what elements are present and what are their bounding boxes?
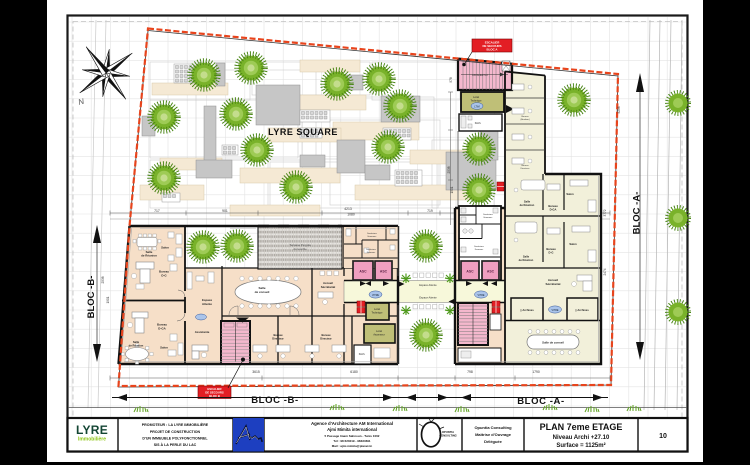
svg-text:Salle: Salle <box>523 255 530 259</box>
svg-text:Salon: Salon <box>161 246 169 250</box>
svg-text:VITRE: VITRE <box>551 309 558 312</box>
svg-text:PROMOTEUR : LA LYRE IMMOBILIÈR: PROMOTEUR : LA LYRE IMMOBILIÈRE <box>142 422 209 427</box>
svg-text:Hommes: Hommes <box>368 236 378 238</box>
svg-text:D-G: D-G <box>161 273 167 277</box>
svg-text:OPUNTIA: OPUNTIA <box>442 430 454 434</box>
svg-text:ASC: ASC <box>380 270 388 274</box>
svg-text:2538: 2538 <box>101 276 105 283</box>
svg-text:SIS À LA PERLE DU LAC: SIS À LA PERLE DU LAC <box>154 442 197 447</box>
svg-text:Salle: Salle <box>133 340 140 344</box>
svg-text:Bureau: Bureau <box>546 247 556 251</box>
svg-text:Tél : 98 623019 - 98334691: Tél : 98 623019 - 98334691 <box>333 439 371 443</box>
svg-text:VITRE: VITRE <box>372 294 379 297</box>
svg-text:D'UN IMMEUBLE POLYFONCTIONNEL: D'UN IMMEUBLE POLYFONCTIONNEL <box>142 437 208 441</box>
svg-text:3615: 3615 <box>252 370 260 374</box>
svg-text:ESCALIER N.2: ESCALIER N.2 <box>472 74 488 77</box>
svg-text:2474: 2474 <box>603 268 607 275</box>
svg-text:Sanitaires: Sanitaires <box>367 232 378 235</box>
svg-text:Niveau Archi +27.10: Niveau Archi +27.10 <box>553 435 610 441</box>
svg-text:Sécrétariat: Sécrétariat <box>546 282 561 286</box>
svg-text:Agence d'Architecture AM Inter: Agence d'Architecture AM International <box>311 421 393 426</box>
svg-text:ASC: ASC <box>487 270 495 274</box>
svg-text:Surface = 1125m²: Surface = 1125m² <box>556 442 605 449</box>
svg-text:Bureau: Bureau <box>322 333 331 337</box>
svg-text:Kitch.: Kitch. <box>475 121 482 125</box>
svg-text:Attente: Attente <box>202 302 212 306</box>
svg-text:PROJET DE CONSTRUCTION: PROJET DE CONSTRUCTION <box>150 430 201 434</box>
svg-text:Femmes: Femmes <box>367 252 376 254</box>
svg-text:Sanitaires: Sanitaires <box>483 213 494 216</box>
svg-text:1901: 1901 <box>450 186 454 193</box>
svg-text:719: 719 <box>427 209 433 213</box>
svg-text:ASC: ASC <box>466 270 474 274</box>
svg-text:de Réunion: de Réunion <box>129 343 144 347</box>
svg-text:6180: 6180 <box>350 370 358 374</box>
svg-text:VITRE: VITRE <box>477 294 484 297</box>
svg-text:D-GA: D-GA <box>158 326 166 330</box>
svg-text:717: 717 <box>154 209 160 213</box>
svg-text:Salle de conseil: Salle de conseil <box>542 341 564 345</box>
svg-text:Salon: Salon <box>566 192 574 196</box>
svg-text:ASC: ASC <box>359 270 367 274</box>
svg-text:PLAN 7eme ETAGE: PLAN 7eme ETAGE <box>540 422 623 432</box>
svg-text:1901: 1901 <box>106 296 110 303</box>
svg-text:Ascenseur: Ascenseur <box>373 334 384 337</box>
svg-text:2538: 2538 <box>447 166 451 173</box>
svg-text:Directeur: Directeur <box>320 336 331 340</box>
svg-text:BLOC -B-: BLOC -B- <box>251 395 299 406</box>
svg-text:Salle: Salle <box>524 200 531 204</box>
svg-text:Directeur: Directeur <box>272 336 283 340</box>
svg-text:Bureau: Bureau <box>521 164 529 167</box>
svg-text:(Bradom): (Bradom) <box>520 118 529 121</box>
svg-text:D-GA: D-GA <box>550 208 557 212</box>
svg-text:Maîtrise d'Ouvrage: Maîtrise d'Ouvrage <box>475 432 512 437</box>
svg-text:D-G: D-G <box>549 251 554 255</box>
svg-text:978: 978 <box>449 77 453 83</box>
svg-text:Assistante: Assistante <box>195 330 210 334</box>
svg-text:Espace Attente: Espace Attente <box>419 296 437 300</box>
svg-text:Bureau: Bureau <box>521 115 529 118</box>
svg-text:de Réunion: de Réunion <box>141 254 157 258</box>
svg-text:Technique: Technique <box>471 99 483 102</box>
svg-text:BLOC A: BLOC A <box>487 48 499 52</box>
svg-text:Salon: Salon <box>569 242 577 246</box>
svg-text:CONSULTING: CONSULTING <box>439 434 457 438</box>
svg-text:1790: 1790 <box>532 370 540 374</box>
svg-text:LYRE SQUARE: LYRE SQUARE <box>268 127 338 137</box>
svg-text:de Réunion: de Réunion <box>519 258 534 262</box>
svg-text:BLOC -B-: BLOC -B- <box>86 276 97 319</box>
svg-text:798: 798 <box>467 370 473 374</box>
svg-text:Femmes: Femmes <box>475 249 484 251</box>
svg-text:10: 10 <box>659 433 667 440</box>
svg-text:LT/M: LT/M <box>474 105 479 108</box>
svg-text:BLOC -A-: BLOC -A- <box>632 192 643 235</box>
svg-text:BLOC -A-: BLOC -A- <box>517 396 565 407</box>
svg-text:Sanitaires: Sanitaires <box>366 248 377 251</box>
svg-text:Technique: Technique <box>372 312 384 315</box>
svg-text:Mail : ajmi.mimita@planet.tn: Mail : ajmi.mimita@planet.tn <box>332 444 373 448</box>
svg-text:Bureau: Bureau <box>548 204 558 208</box>
svg-text:4213: 4213 <box>344 207 352 211</box>
svg-text:Sanitaires: Sanitaires <box>474 245 485 248</box>
svg-text:Immobilière: Immobilière <box>78 437 106 443</box>
svg-text:Sécrétariat: Sécrétariat <box>321 285 336 289</box>
svg-text:Espace Attente: Espace Attente <box>419 283 437 287</box>
svg-text:de Réunion: de Réunion <box>520 203 535 207</box>
svg-text:Kitch.: Kitch. <box>359 352 366 356</box>
svg-text:LYRE: LYRE <box>76 423 108 437</box>
svg-text:Salon: Salon <box>160 346 168 350</box>
svg-text:▯ Archives: ▯ Archives <box>575 308 589 312</box>
svg-text:Ajmi Mimita international: Ajmi Mimita international <box>327 427 377 432</box>
svg-text:de conseil: de conseil <box>255 290 270 294</box>
svg-text:5 Passage Imam Sahnoun - Tuni: 5 Passage Imam Sahnoun - Tunis 1002 <box>325 434 380 438</box>
svg-text:Bureau: Bureau <box>274 333 283 337</box>
svg-text:▯ Archives: ▯ Archives <box>520 308 534 312</box>
svg-text:1080: 1080 <box>347 213 355 217</box>
svg-text:5298: 5298 <box>617 106 621 113</box>
svg-text:901: 901 <box>222 209 228 213</box>
svg-text:Accessible: Accessible <box>293 247 307 251</box>
svg-text:Opuntia Consulting: Opuntia Consulting <box>474 425 512 430</box>
svg-text:3772: 3772 <box>603 209 607 216</box>
svg-text:Directeur: Directeur <box>521 167 530 170</box>
svg-text:Déléguée: Déléguée <box>484 439 503 444</box>
svg-text:Hommes: Hommes <box>484 217 494 219</box>
